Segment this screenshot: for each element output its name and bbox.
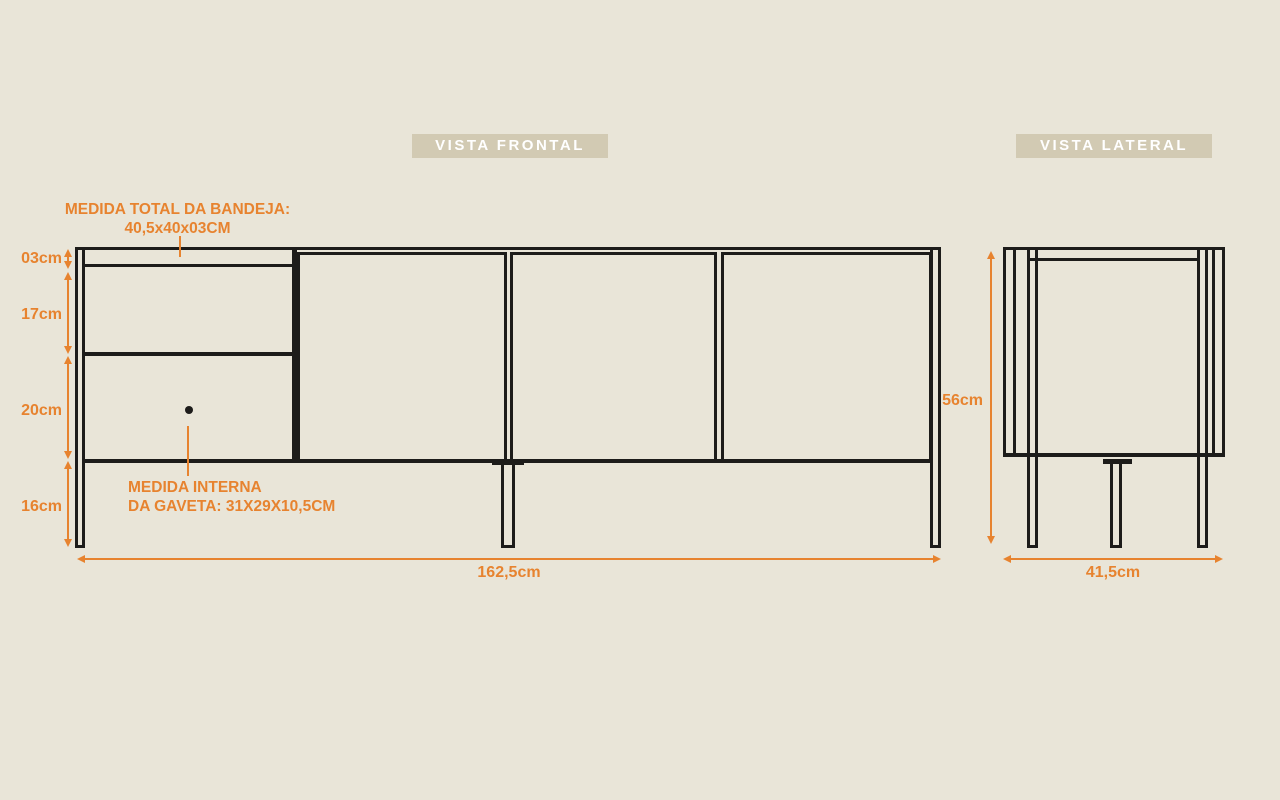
front-tray-bottom-line xyxy=(84,264,293,267)
tray-measure-note-line2: 40,5x40x03CM xyxy=(55,219,300,238)
dim-arrow-side-width xyxy=(1003,554,1223,564)
front-middle-leg xyxy=(501,460,515,548)
dim-arrow-front-width xyxy=(77,554,941,564)
dim-arrow-shelf-height xyxy=(63,272,73,354)
drawer-measure-note-line2: DA GAVETA: 31X29X10,5CM xyxy=(128,497,398,516)
dim-label-front-width: 162,5cm xyxy=(429,564,589,582)
side-view-title-badge: VISTA LATERAL xyxy=(1016,134,1212,158)
side-front-leg xyxy=(1027,247,1038,548)
side-under-rail xyxy=(1029,258,1198,261)
dim-label-side-height: 56cm xyxy=(925,392,983,410)
dim-arrow-drawer-height xyxy=(63,356,73,459)
dim-label-shelf-height: 17cm xyxy=(18,306,62,324)
front-top-rail xyxy=(75,247,941,250)
front-left-leg xyxy=(75,247,85,548)
tray-measure-note-line1: MEDIDA TOTAL DA BANDEJA: xyxy=(55,200,300,219)
side-back-leg xyxy=(1197,247,1208,548)
front-door-3 xyxy=(721,252,932,462)
dim-arrow-tray-height xyxy=(63,249,73,269)
side-middle-leg xyxy=(1110,459,1122,548)
dim-arrow-side-height xyxy=(986,251,996,544)
dim-label-tray-height: 03cm xyxy=(18,250,62,268)
front-shelf-drawer-divider xyxy=(84,352,293,356)
tray-note-leader-line xyxy=(179,236,181,257)
side-right-panel-edge xyxy=(1212,247,1225,456)
dim-label-drawer-height: 20cm xyxy=(18,402,62,420)
front-door-1 xyxy=(297,252,507,462)
tray-measure-note: MEDIDA TOTAL DA BANDEJA: 40,5x40x03CM xyxy=(55,200,300,238)
side-body-bottom xyxy=(1003,453,1225,457)
dim-label-leg-height: 16cm xyxy=(18,498,62,516)
drawer-knob xyxy=(185,406,193,414)
front-view-title-badge: VISTA FRONTAL xyxy=(412,134,608,158)
front-door-2 xyxy=(510,252,717,462)
drawer-measure-note-line1: MEDIDA INTERNA xyxy=(128,478,398,497)
dim-label-side-width: 41,5cm xyxy=(1033,564,1193,582)
drawer-measure-note: MEDIDA INTERNA DA GAVETA: 31X29X10,5CM xyxy=(128,478,398,516)
side-left-panel-edge xyxy=(1003,247,1016,456)
furniture-dimension-diagram: VISTA FRONTAL VISTA LATERAL MEDIDA TOTAL… xyxy=(0,0,1280,800)
dim-arrow-leg-height xyxy=(63,461,73,547)
drawer-note-leader-line xyxy=(187,426,189,476)
